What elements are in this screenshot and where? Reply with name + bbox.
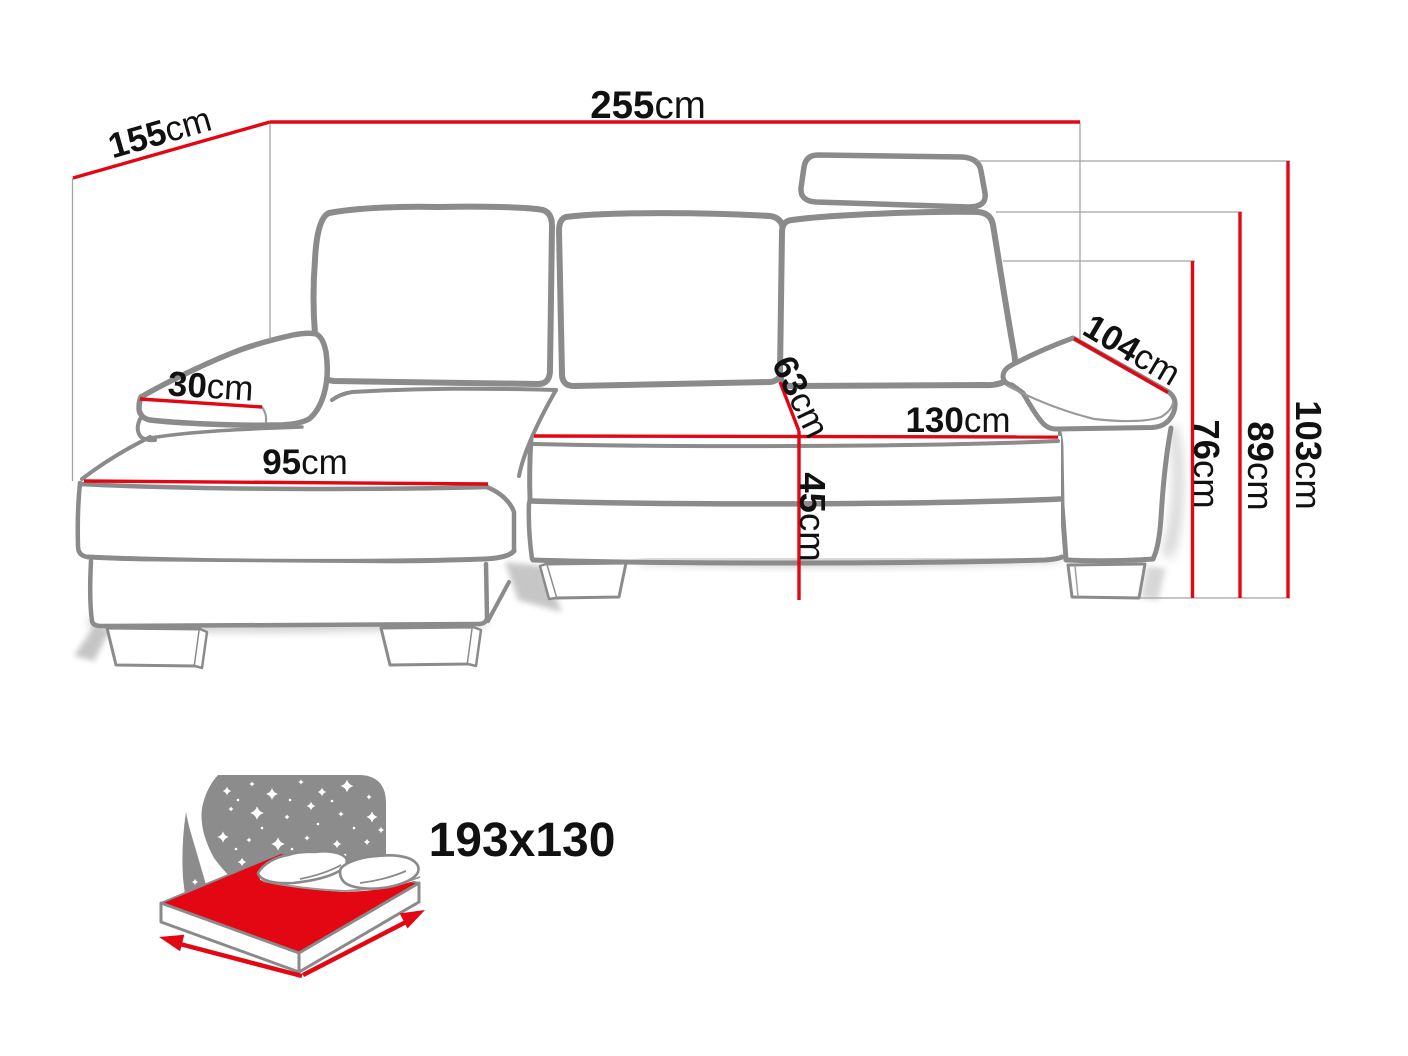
svg-text:89cm: 89cm (1240, 421, 1281, 510)
svg-text:95cm: 95cm (262, 443, 348, 482)
svg-text:30cm: 30cm (167, 364, 255, 408)
svg-text:45cm: 45cm (792, 472, 833, 561)
svg-text:103cm: 103cm (1288, 400, 1329, 510)
svg-text:255cm: 255cm (590, 84, 706, 127)
svg-text:193x130: 193x130 (429, 814, 616, 867)
svg-text:76cm: 76cm (1186, 419, 1227, 508)
svg-text:130cm: 130cm (905, 401, 1010, 440)
